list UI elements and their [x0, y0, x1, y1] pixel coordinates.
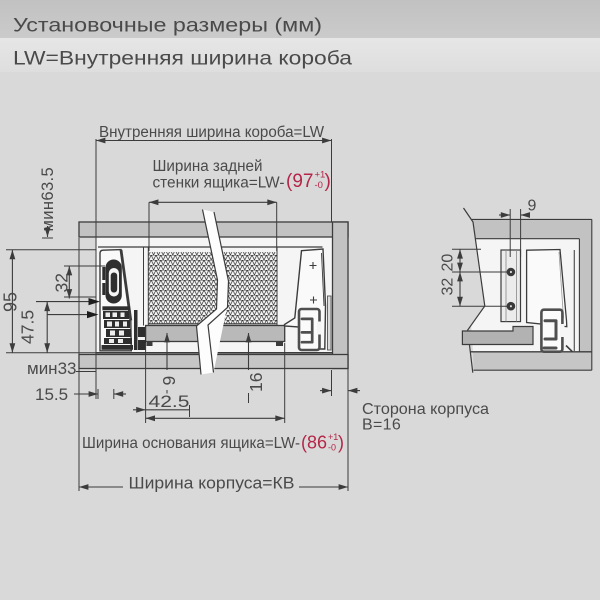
svg-text:мин33: мин33	[27, 359, 76, 378]
svg-text:Ширина корпуса=КВ: Ширина корпуса=КВ	[129, 475, 295, 493]
svg-text:9: 9	[528, 198, 537, 215]
svg-text:Установочные размеры (мм): Установочные размеры (мм)	[13, 15, 322, 37]
svg-text:): )	[338, 433, 344, 453]
svg-text:Внутренняя ширина короба=LW: Внутренняя ширина короба=LW	[99, 124, 324, 141]
svg-text:20: 20	[440, 254, 457, 272]
svg-text:Сторона корпуса: Сторона корпуса	[362, 401, 489, 418]
svg-text:32: 32	[52, 273, 72, 292]
svg-text:стенки ящика=LW-: стенки ящика=LW-	[153, 175, 285, 192]
svg-text:-0: -0	[328, 443, 336, 453]
svg-text:LW=Внутренняя ширина короба: LW=Внутренняя ширина короба	[13, 48, 352, 70]
svg-text:): )	[325, 171, 331, 192]
svg-text:В=16: В=16	[362, 417, 401, 434]
svg-text:42.5: 42.5	[149, 393, 190, 411]
svg-text:-0: -0	[315, 180, 323, 191]
svg-text:+1: +1	[328, 432, 338, 442]
svg-text:Ширина задней: Ширина задней	[153, 158, 263, 175]
svg-text:9: 9	[159, 376, 179, 386]
svg-text:32: 32	[440, 278, 457, 296]
svg-text:(97: (97	[286, 171, 313, 192]
svg-text:95: 95	[1, 292, 21, 312]
svg-text:16: 16	[246, 373, 266, 392]
svg-text:15.5: 15.5	[35, 385, 68, 404]
svg-text:Ширина основания ящика=LW-: Ширина основания ящика=LW-	[82, 435, 300, 452]
svg-text:47.5: 47.5	[18, 310, 38, 344]
svg-text:(86: (86	[301, 433, 327, 453]
svg-text:мин63.5: мин63.5	[39, 167, 57, 232]
